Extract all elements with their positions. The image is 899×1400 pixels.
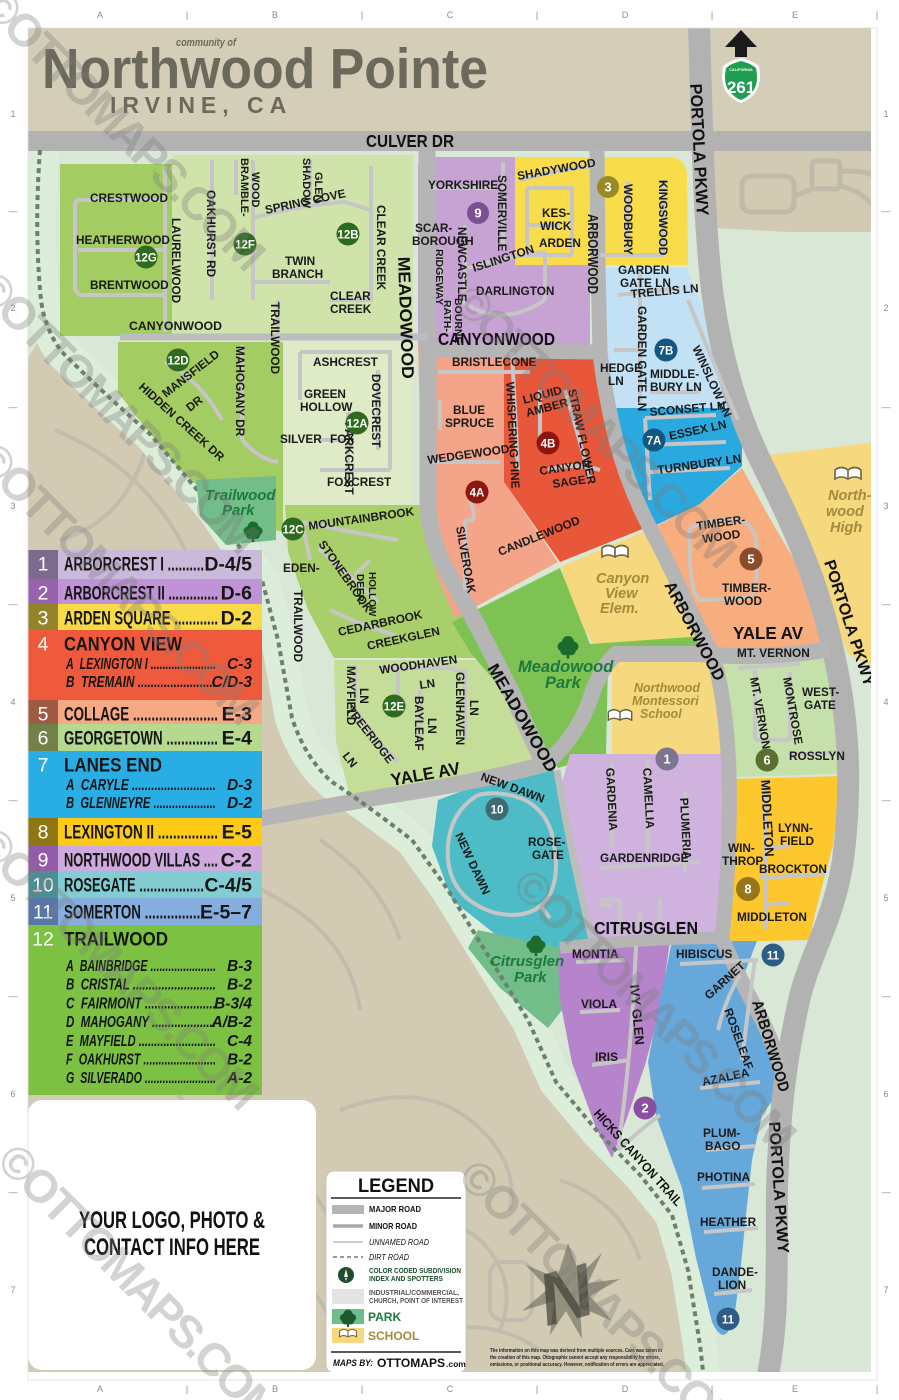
svg-text:4B: 4B bbox=[541, 439, 556, 451]
svg-text:—: — bbox=[882, 599, 891, 609]
svg-text:D: D bbox=[622, 1384, 629, 1394]
svg-text:.com: .com bbox=[446, 1359, 466, 1369]
svg-text:3: 3 bbox=[883, 501, 888, 511]
svg-text:SOMERVILLE: SOMERVILLE bbox=[495, 175, 509, 252]
svg-text:D: D bbox=[622, 10, 629, 20]
svg-text:|: | bbox=[876, 1384, 878, 1394]
svg-text:MAPS BY:: MAPS BY: bbox=[333, 1358, 373, 1369]
svg-text:TRAILWOOD: TRAILWOOD bbox=[291, 590, 305, 663]
svg-text:CALIFORNIA: CALIFORNIA bbox=[729, 68, 753, 72]
svg-text:YALE AV: YALE AV bbox=[733, 623, 803, 643]
svg-text:HOLLOW: HOLLOW bbox=[366, 572, 377, 617]
svg-text:wood: wood bbox=[826, 504, 865, 520]
svg-text:NORTHWOOD VILLAS ....: NORTHWOOD VILLAS .... bbox=[64, 850, 218, 872]
svg-text:—: — bbox=[9, 206, 18, 216]
svg-text:North-: North- bbox=[828, 488, 872, 504]
svg-text:LN: LN bbox=[467, 700, 481, 716]
svg-text:WOOD: WOOD bbox=[724, 594, 762, 608]
svg-text:GATE: GATE bbox=[804, 698, 836, 712]
svg-text:A CARYLE ....................: A CARYLE .......................... bbox=[65, 777, 216, 794]
svg-text:LN: LN bbox=[357, 688, 371, 704]
svg-text:INDEX AND SPOTTERS: INDEX AND SPOTTERS bbox=[369, 1274, 443, 1283]
svg-text:BAYLEAF: BAYLEAF bbox=[412, 696, 426, 751]
svg-text:RIDGEWAY: RIDGEWAY bbox=[433, 249, 445, 305]
svg-text:FOX: FOX bbox=[330, 432, 354, 446]
svg-text:Montessori: Montessori bbox=[632, 694, 699, 708]
svg-text:—: — bbox=[882, 206, 891, 216]
svg-text:6: 6 bbox=[10, 1089, 15, 1099]
svg-text:E-5–7: E-5–7 bbox=[200, 902, 252, 924]
svg-text:GARDEN GATE LN: GARDEN GATE LN bbox=[635, 306, 649, 411]
svg-text:|: | bbox=[361, 1384, 363, 1394]
svg-text:ROSSLYN: ROSSLYN bbox=[789, 749, 845, 763]
svg-text:|: | bbox=[536, 1384, 538, 1394]
svg-text:1: 1 bbox=[38, 554, 49, 576]
svg-text:Northwood: Northwood bbox=[634, 681, 700, 695]
svg-text:3: 3 bbox=[604, 180, 611, 195]
svg-text:GREEN: GREEN bbox=[304, 387, 346, 401]
svg-text:HEATHER: HEATHER bbox=[700, 1215, 757, 1229]
svg-text:BURY LN: BURY LN bbox=[650, 380, 702, 394]
svg-text:6: 6 bbox=[763, 753, 770, 768]
svg-text:BAGO: BAGO bbox=[705, 1139, 740, 1153]
svg-text:THROP: THROP bbox=[722, 854, 763, 868]
svg-text:DIRT ROAD: DIRT ROAD bbox=[369, 1252, 409, 1262]
svg-text:Elem.: Elem. bbox=[600, 601, 639, 617]
svg-text:TWIN: TWIN bbox=[285, 254, 315, 268]
svg-text:LANES END: LANES END bbox=[64, 755, 162, 777]
svg-text:OTTOMAPS: OTTOMAPS bbox=[377, 1356, 445, 1370]
svg-text:10: 10 bbox=[491, 805, 504, 817]
svg-text:|: | bbox=[186, 1384, 188, 1394]
svg-text:D-3: D-3 bbox=[227, 777, 252, 794]
svg-text:—: — bbox=[882, 991, 891, 1001]
svg-text:E: E bbox=[792, 1384, 798, 1394]
svg-text:PLUM-: PLUM- bbox=[703, 1126, 740, 1140]
svg-text:—: — bbox=[882, 795, 891, 805]
svg-text:HIBISCUS: HIBISCUS bbox=[676, 947, 733, 961]
svg-text:7: 7 bbox=[38, 755, 49, 777]
svg-text:B-2: B-2 bbox=[227, 977, 252, 994]
svg-text:11: 11 bbox=[722, 1315, 735, 1327]
svg-text:LAURELWOOD: LAURELWOOD bbox=[169, 218, 183, 304]
svg-text:6: 6 bbox=[883, 1089, 888, 1099]
svg-text:HEATHERWOOD: HEATHERWOOD bbox=[76, 233, 170, 247]
svg-text:LEXINGTON II ................: LEXINGTON II ................ bbox=[64, 822, 218, 844]
svg-text:CREEK: CREEK bbox=[330, 302, 372, 316]
svg-text:|: | bbox=[711, 10, 713, 20]
svg-text:MIDDLE-: MIDDLE- bbox=[650, 367, 699, 381]
svg-text:ARBORWOOD: ARBORWOOD bbox=[584, 214, 601, 294]
svg-text:GARDENRIDGE: GARDENRIDGE bbox=[600, 851, 689, 865]
svg-text:WEST-: WEST- bbox=[802, 685, 839, 699]
svg-text:WOOD: WOOD bbox=[249, 172, 261, 207]
svg-text:12B: 12B bbox=[337, 230, 358, 242]
svg-text:TRAILWOOD: TRAILWOOD bbox=[268, 302, 282, 375]
svg-text:Canyon: Canyon bbox=[596, 571, 649, 587]
svg-text:8: 8 bbox=[744, 882, 751, 897]
svg-text:MAJOR ROAD: MAJOR ROAD bbox=[369, 1204, 421, 1214]
svg-text:5: 5 bbox=[747, 552, 754, 567]
svg-text:11: 11 bbox=[767, 951, 780, 963]
svg-text:SHADOW: SHADOW bbox=[300, 158, 312, 209]
svg-text:CHURCH, POINT OF INTEREST: CHURCH, POINT OF INTEREST bbox=[369, 1296, 464, 1305]
svg-text:MIDDLETON: MIDDLETON bbox=[737, 910, 807, 924]
svg-text:12A: 12A bbox=[346, 419, 367, 431]
svg-text:ARDEN: ARDEN bbox=[539, 236, 581, 250]
svg-text:5: 5 bbox=[883, 893, 888, 903]
svg-text:12E: 12E bbox=[384, 702, 405, 714]
svg-text:—: — bbox=[882, 402, 891, 412]
svg-text:PARK: PARK bbox=[368, 1310, 401, 1324]
svg-text:B: B bbox=[272, 10, 278, 20]
svg-text:KES-: KES- bbox=[542, 206, 570, 220]
svg-text:IRIS: IRIS bbox=[595, 1050, 618, 1064]
svg-text:Citrusglen: Citrusglen bbox=[490, 953, 564, 970]
svg-text:School: School bbox=[640, 707, 682, 721]
svg-text:4: 4 bbox=[883, 697, 888, 707]
svg-text:CLEAR: CLEAR bbox=[330, 289, 371, 303]
svg-text:TIMBER-: TIMBER- bbox=[722, 581, 771, 595]
svg-text:SILVER: SILVER bbox=[280, 432, 322, 446]
svg-text:7: 7 bbox=[883, 1285, 888, 1295]
svg-text:FOXCREST: FOXCREST bbox=[327, 475, 392, 489]
svg-text:Park: Park bbox=[514, 969, 547, 986]
svg-text:MINOR ROAD: MINOR ROAD bbox=[369, 1221, 417, 1231]
svg-text:A/B-2: A/B-2 bbox=[211, 1014, 253, 1031]
svg-text:12C: 12C bbox=[282, 525, 303, 537]
svg-text:—: — bbox=[9, 991, 18, 1001]
svg-text:MAHOGANY DR: MAHOGANY DR bbox=[233, 346, 247, 437]
svg-text:ROSE-: ROSE- bbox=[528, 835, 565, 849]
svg-text:C: C bbox=[447, 1384, 454, 1394]
svg-text:A: A bbox=[97, 1384, 103, 1394]
svg-text:9: 9 bbox=[474, 206, 481, 221]
svg-text:C: C bbox=[447, 10, 454, 20]
svg-text:D-2: D-2 bbox=[227, 795, 252, 812]
svg-text:1: 1 bbox=[10, 109, 15, 119]
svg-text:12D: 12D bbox=[167, 356, 188, 368]
svg-text:FIELD: FIELD bbox=[780, 834, 815, 848]
svg-text:LEGEND: LEGEND bbox=[358, 1176, 434, 1197]
svg-text:UNNAMED ROAD: UNNAMED ROAD bbox=[369, 1237, 429, 1247]
svg-text:E-4: E-4 bbox=[222, 728, 253, 750]
svg-text:BROCKTON: BROCKTON bbox=[759, 862, 827, 876]
svg-text:4: 4 bbox=[38, 634, 49, 656]
svg-text:3: 3 bbox=[38, 608, 49, 630]
svg-text:CLEAR CREEK: CLEAR CREEK bbox=[374, 205, 388, 291]
svg-text:—: — bbox=[9, 402, 18, 412]
svg-text:MT. VERNON: MT. VERNON bbox=[737, 646, 810, 660]
svg-text:|: | bbox=[361, 10, 363, 20]
svg-text:4: 4 bbox=[10, 697, 15, 707]
svg-text:SCAR-: SCAR- bbox=[415, 221, 452, 235]
svg-text:7B: 7B bbox=[659, 346, 674, 358]
svg-text:D-2: D-2 bbox=[221, 608, 253, 630]
svg-text:BRANCH: BRANCH bbox=[272, 267, 323, 281]
svg-text:Park: Park bbox=[545, 674, 582, 692]
svg-text:High: High bbox=[830, 520, 862, 536]
svg-text:KINGSWOOD: KINGSWOOD bbox=[656, 180, 670, 256]
svg-text:WIN-: WIN- bbox=[728, 841, 755, 855]
svg-text:C-4/5: C-4/5 bbox=[204, 875, 252, 897]
svg-text:B-3: B-3 bbox=[227, 958, 252, 975]
svg-text:7: 7 bbox=[10, 1285, 15, 1295]
svg-text:LYNN-: LYNN- bbox=[778, 821, 813, 835]
svg-text:B-3/4: B-3/4 bbox=[214, 995, 252, 1012]
svg-text:6: 6 bbox=[38, 728, 49, 750]
svg-text:YORKSHIRE: YORKSHIRE bbox=[428, 178, 498, 192]
svg-text:8: 8 bbox=[38, 822, 49, 844]
svg-text:ASHCREST: ASHCREST bbox=[313, 355, 379, 369]
svg-text:GARDEN: GARDEN bbox=[618, 263, 669, 277]
svg-text:View: View bbox=[605, 586, 639, 602]
svg-text:EDEN-: EDEN- bbox=[283, 561, 320, 575]
svg-text:WICK: WICK bbox=[540, 219, 572, 233]
svg-text:—: — bbox=[9, 795, 18, 805]
svg-text:WOODBURY: WOODBURY bbox=[621, 184, 635, 255]
svg-text:2: 2 bbox=[641, 1101, 648, 1116]
svg-text:2: 2 bbox=[38, 583, 49, 605]
svg-text:CULVER DR: CULVER DR bbox=[366, 131, 454, 151]
svg-text:DOVECREST: DOVECREST bbox=[369, 374, 383, 448]
svg-text:2: 2 bbox=[883, 303, 888, 313]
svg-text:GLEN: GLEN bbox=[312, 172, 324, 203]
svg-text:1: 1 bbox=[883, 109, 888, 119]
svg-text:DANDE-: DANDE- bbox=[712, 1265, 758, 1279]
svg-text:4A: 4A bbox=[470, 488, 485, 500]
svg-text:COLLAGE ......................: COLLAGE ....................... bbox=[64, 704, 218, 726]
svg-text:B GLENNEYRE .................: B GLENNEYRE .................... bbox=[66, 795, 216, 812]
svg-text:5: 5 bbox=[38, 704, 49, 726]
svg-text:HEDGE: HEDGE bbox=[600, 361, 642, 375]
svg-text:E-5: E-5 bbox=[222, 822, 253, 844]
svg-text:ROSEGATE ..................: ROSEGATE .................. bbox=[64, 875, 204, 897]
svg-text:—: — bbox=[882, 1187, 891, 1197]
svg-text:BLUE: BLUE bbox=[453, 403, 485, 417]
svg-text:CANYONWOOD: CANYONWOOD bbox=[129, 319, 222, 333]
svg-text:BRENTWOOD: BRENTWOOD bbox=[90, 278, 169, 292]
svg-text:DEER-: DEER- bbox=[354, 574, 365, 605]
svg-text:|: | bbox=[536, 10, 538, 20]
svg-text:E: E bbox=[792, 10, 798, 20]
svg-text:D-6: D-6 bbox=[221, 583, 253, 605]
svg-text:1: 1 bbox=[663, 752, 670, 767]
svg-text:|: | bbox=[876, 10, 878, 20]
svg-text:A: A bbox=[97, 10, 103, 20]
svg-text:LN: LN bbox=[425, 718, 439, 734]
svg-text:GEORGETOWN ..............: GEORGETOWN .............. bbox=[64, 728, 218, 750]
svg-text:261: 261 bbox=[727, 78, 755, 97]
svg-text:SCHOOL: SCHOOL bbox=[368, 1329, 419, 1343]
svg-text:|: | bbox=[186, 10, 188, 20]
svg-text:GLENHAVEN: GLENHAVEN bbox=[453, 672, 467, 745]
svg-text:12G: 12G bbox=[135, 253, 157, 265]
svg-text:HOLLOW: HOLLOW bbox=[300, 400, 353, 414]
svg-text:LION: LION bbox=[718, 1278, 746, 1292]
svg-text:SPRUCE: SPRUCE bbox=[445, 416, 494, 430]
svg-text:LN: LN bbox=[418, 676, 436, 692]
svg-text:PHOTINA: PHOTINA bbox=[697, 1170, 751, 1184]
svg-text:LN: LN bbox=[608, 374, 624, 388]
svg-text:C-2: C-2 bbox=[221, 850, 253, 872]
svg-text:—: — bbox=[9, 599, 18, 609]
